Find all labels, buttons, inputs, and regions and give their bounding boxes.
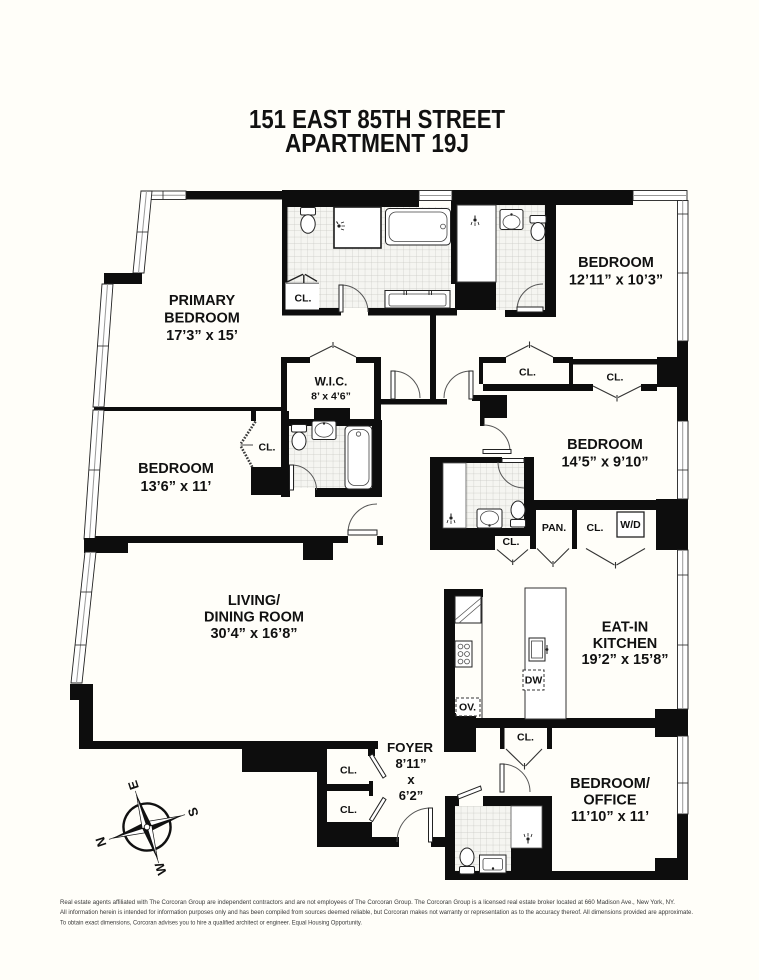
- svg-text:LIVING/: LIVING/: [228, 593, 280, 609]
- svg-text:To obtain exact dimensions, Co: To obtain exact dimensions, Corcoran adv…: [60, 919, 362, 926]
- svg-text:BEDROOM: BEDROOM: [164, 311, 240, 327]
- svg-text:BEDROOM: BEDROOM: [567, 437, 643, 453]
- svg-text:14’5” x 9’10”: 14’5” x 9’10”: [561, 455, 648, 471]
- svg-text:PRIMARY: PRIMARY: [169, 293, 236, 309]
- svg-text:x: x: [407, 772, 415, 787]
- svg-text:19’2” x 15’8”: 19’2” x 15’8”: [581, 652, 668, 668]
- svg-text:KITCHEN: KITCHEN: [593, 636, 657, 652]
- svg-text:DINING ROOM: DINING ROOM: [204, 610, 304, 626]
- svg-text:W.I.C.: W.I.C.: [315, 375, 348, 389]
- svg-text:BEDROOM: BEDROOM: [138, 461, 214, 477]
- svg-text:13’6” x 11’: 13’6” x 11’: [141, 479, 212, 495]
- svg-text:CL.: CL.: [517, 732, 534, 744]
- svg-text:OFFICE: OFFICE: [583, 793, 636, 809]
- svg-text:CL.: CL.: [295, 293, 312, 305]
- svg-text:W/D: W/D: [620, 519, 641, 531]
- svg-text:EAT-IN: EAT-IN: [602, 620, 648, 636]
- svg-text:CL.: CL.: [340, 765, 357, 777]
- svg-text:BEDROOM/: BEDROOM/: [570, 776, 650, 792]
- svg-text:APARTMENT 19J: APARTMENT 19J: [285, 130, 469, 158]
- svg-text:CL.: CL.: [503, 536, 520, 548]
- svg-text:30’4” x 16’8”: 30’4” x 16’8”: [210, 626, 297, 642]
- svg-text:All information herein is inte: All information herein is intended for i…: [60, 909, 693, 916]
- svg-text:CL.: CL.: [259, 442, 276, 454]
- svg-text:8’ x 4’6”: 8’ x 4’6”: [311, 391, 351, 403]
- svg-text:6’2”: 6’2”: [399, 788, 424, 803]
- svg-text:CL.: CL.: [607, 372, 624, 384]
- svg-text:8’11”: 8’11”: [395, 756, 426, 771]
- svg-text:11’10” x 11’: 11’10” x 11’: [571, 809, 649, 825]
- svg-text:PAN.: PAN.: [542, 522, 566, 534]
- svg-text:12’11” x 10’3”: 12’11” x 10’3”: [569, 273, 663, 289]
- svg-text:Real estate agents affiliated: Real estate agents affiliated with The C…: [60, 899, 675, 906]
- svg-text:FOYER: FOYER: [387, 740, 434, 755]
- svg-text:OV.: OV.: [459, 702, 476, 714]
- svg-text:CL.: CL.: [587, 522, 604, 534]
- svg-text:DW: DW: [525, 675, 543, 687]
- svg-text:CL.: CL.: [340, 804, 357, 816]
- svg-text:CL.: CL.: [519, 367, 536, 379]
- svg-text:BEDROOM: BEDROOM: [578, 255, 654, 271]
- svg-text:17’3” x 15’: 17’3” x 15’: [166, 328, 238, 344]
